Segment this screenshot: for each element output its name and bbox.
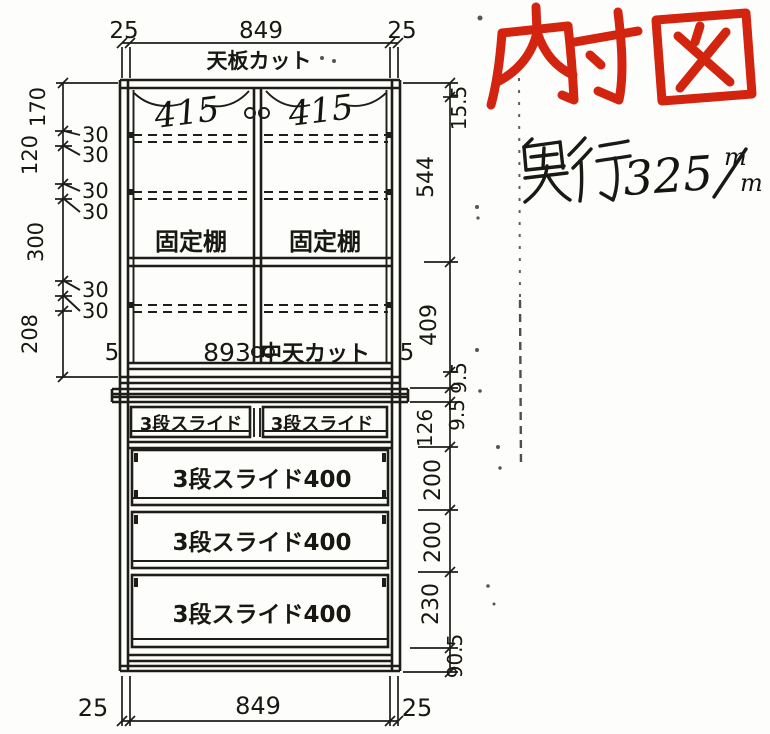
- adjustable-shelf-lines: [127, 132, 392, 312]
- lower-unit: 3段スライド 3段スライド 3段スライド400 3段スライド400 3段スライド…: [128, 407, 392, 647]
- right-gap-5: 5: [400, 340, 415, 366]
- left-seg-208: 208: [18, 314, 42, 354]
- right-seg-9.5b: 9.5: [445, 399, 469, 431]
- door-right-width-note: 415: [285, 87, 355, 135]
- shelf-pitch-30: 30: [82, 143, 109, 167]
- right-seg-15.5: 15.5: [447, 86, 471, 131]
- drawer-2-label: 3段スライド400: [172, 529, 351, 556]
- red-title-handwriting: 内寸図: [491, 7, 752, 105]
- right-seg-90.5: 90.5: [443, 634, 467, 679]
- drawer-1-label: 3段スライド400: [172, 466, 351, 493]
- left-seg-120: 120: [18, 135, 42, 175]
- top-dim-right-25: 25: [387, 18, 416, 44]
- cabinet-diagram-canvas: 25 849 25 天板カット: [0, 0, 770, 734]
- scanned-dimension-drawing: 25 849 25 天板カット: [0, 0, 770, 734]
- mid-board-width: 893: [203, 338, 251, 367]
- depth-note-unit-bottom: m: [740, 169, 763, 197]
- top-board-cut-label: 天板カット: [207, 49, 312, 73]
- bottom-dim-right-25: 25: [402, 694, 433, 722]
- right-seg-409: 409: [417, 304, 442, 346]
- right-seg-200a: 200: [421, 459, 446, 501]
- shelf-pitch-30: 30: [82, 299, 109, 323]
- shelf-pitch-30: 30: [82, 200, 109, 224]
- top-dim-left-25: 25: [109, 18, 138, 44]
- top-dim-849: 849: [239, 18, 283, 44]
- bottom-dim-left-25: 25: [78, 694, 109, 722]
- depth-note-value: 325: [621, 146, 714, 207]
- right-seg-200b: 200: [421, 521, 446, 563]
- right-seg-544: 544: [414, 156, 439, 198]
- right-seg-126: 126: [413, 409, 437, 447]
- bottom-dim-849: 849: [235, 692, 281, 720]
- bottom-dimension: 25 849 25: [78, 676, 433, 726]
- left-seg-300: 300: [24, 222, 48, 262]
- drawer-3-label: 3段スライド400: [172, 601, 351, 628]
- fixed-shelf-left-label: 固定棚: [155, 228, 227, 256]
- fixed-shelf-right-label: 固定棚: [289, 228, 361, 256]
- right-dimension-chain: 15.5 544 409 9.5 9.5 126 200 200 230 90.…: [403, 78, 471, 678]
- small-drawer-left-label: 3段スライド: [140, 413, 243, 435]
- mid-board-cut-label: 中天カット: [260, 342, 370, 367]
- right-seg-230: 230: [419, 583, 444, 625]
- left-dimension-chain: 30 30 30 30 30 30 170 120 300 208: [18, 78, 118, 382]
- left-seg-170: 170: [26, 87, 50, 127]
- small-drawer-right-label: 3段スライド: [271, 413, 374, 435]
- upper-unit: 415 415 固定棚 固定棚 893 中天カット: [105, 87, 415, 367]
- right-seg-9.5a: 9.5: [447, 362, 471, 394]
- depth-note-handwriting: 325 m m 奥行: [524, 138, 763, 207]
- door-left-width-note: 415: [151, 89, 221, 137]
- left-gap-5: 5: [105, 340, 120, 366]
